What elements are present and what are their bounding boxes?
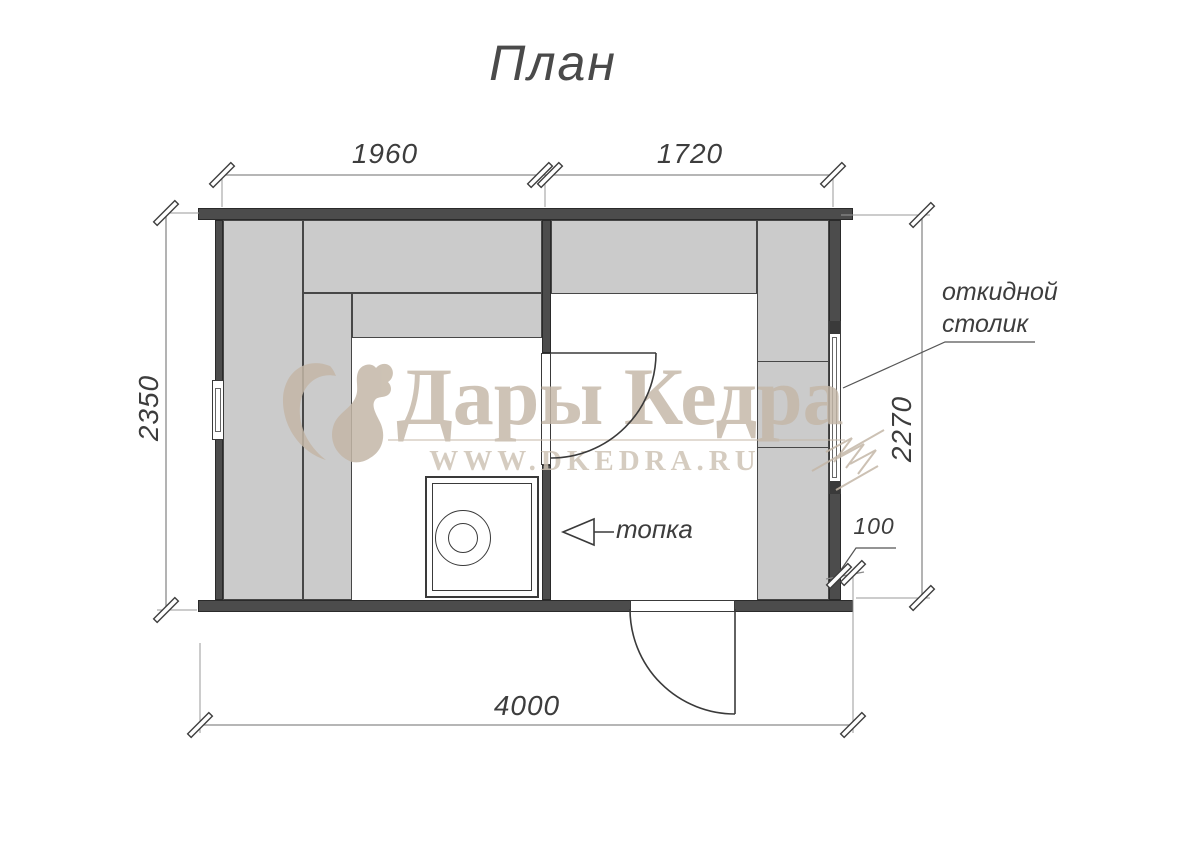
watermark-url: WWW.DKEDRA.RU bbox=[410, 445, 780, 478]
dim-left-label: 2350 bbox=[133, 348, 165, 468]
furnace-arrow-icon bbox=[563, 519, 614, 545]
partition-wall-upper bbox=[542, 220, 551, 353]
folding-table-label: откидной столик bbox=[942, 276, 1058, 340]
dim-right-label: 2270 bbox=[886, 369, 918, 489]
page-title: План bbox=[433, 34, 673, 92]
partition-wall-lower bbox=[542, 465, 551, 600]
folding-table-label-line2: столик bbox=[942, 308, 1058, 340]
stove-circle-inner bbox=[448, 523, 478, 553]
bench-seat-outline bbox=[757, 361, 829, 448]
folding-table-leaf bbox=[832, 337, 837, 478]
dim-top-left-label: 1960 bbox=[325, 138, 445, 170]
bench-left-strip bbox=[223, 220, 303, 600]
exterior-door-opening bbox=[630, 600, 735, 612]
top-wall bbox=[198, 208, 853, 220]
bench-top-rest-room bbox=[551, 220, 757, 294]
dim-top-right-label: 1720 bbox=[630, 138, 750, 170]
folding-table-cap-top bbox=[829, 321, 841, 333]
bench-top-tier1-steam-room bbox=[303, 220, 542, 293]
floor-plan-canvas: План Дары Кедра WWW.DKEDRA.RU bbox=[0, 0, 1200, 848]
bench-top-tier2-steam-room bbox=[352, 293, 542, 338]
window-left-glazing bbox=[215, 388, 221, 432]
linework-overlay bbox=[0, 0, 1200, 848]
interior-door-swing bbox=[551, 353, 656, 458]
dim-bottom-label: 4000 bbox=[467, 690, 587, 722]
watermark: Дары Кедра WWW.DKEDRA.RU bbox=[0, 0, 1200, 848]
leader-lines bbox=[836, 342, 1035, 577]
folding-table-cap-bottom bbox=[829, 482, 841, 494]
furnace-label: топка bbox=[616, 514, 693, 545]
bench-side-strip-steam-room bbox=[303, 293, 352, 600]
exterior-door-swing bbox=[630, 609, 735, 714]
bottom-wall bbox=[198, 600, 853, 612]
folding-table-label-line1: откидной bbox=[942, 276, 1058, 308]
dim-offset-label: 100 bbox=[844, 513, 904, 540]
interior-door-opening bbox=[541, 353, 551, 465]
